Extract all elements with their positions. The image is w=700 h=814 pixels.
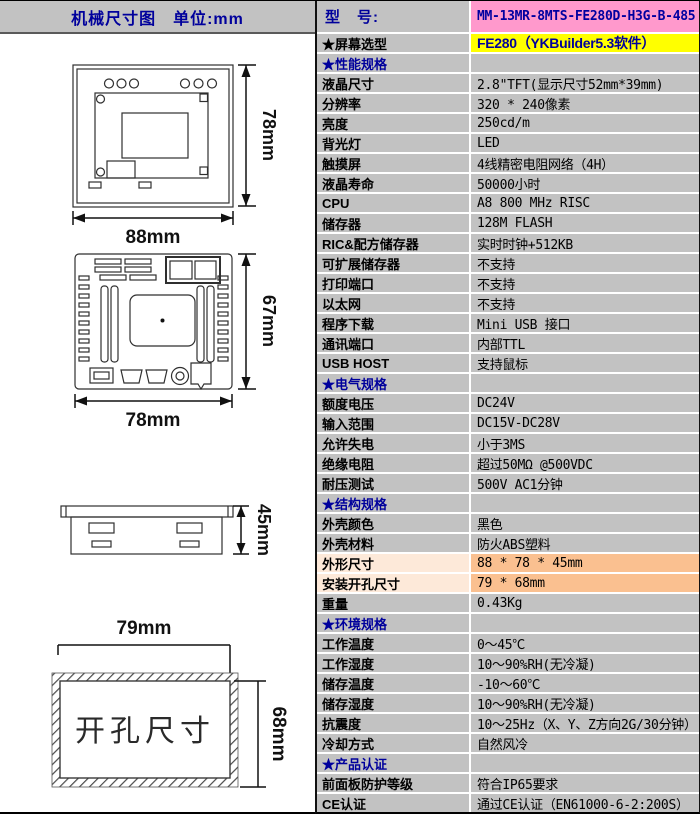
side-view-drawing: 45mm — [61, 504, 274, 556]
spec-row: 程序下载Mini USB 接口 — [317, 314, 699, 334]
spec-row-value: 10～25Hz（X、Y、Z方向2G/30分钟） — [471, 714, 699, 732]
spec-row-value: 500V AC1分钟 — [471, 474, 699, 492]
datasheet: 机械尺寸图 单位:mm — [0, 0, 700, 814]
spec-row: ★电气规格 — [317, 374, 699, 394]
spec-row-value: 128M FLASH — [471, 214, 699, 232]
spec-row-label: CPU — [317, 194, 469, 212]
spec-row-label: 背光灯 — [317, 134, 469, 152]
spec-row-value: MM-13MR-8MTS-FE280D-H3G-B-485 — [471, 1, 699, 32]
spec-row: 外壳颜色黑色 — [317, 514, 699, 534]
spec-row-label: 外壳材料 — [317, 534, 469, 552]
spec-row-label: 程序下载 — [317, 314, 469, 332]
spec-row: RIC&配方储存器实时时钟+512KB — [317, 234, 699, 254]
spec-row-value — [471, 614, 699, 632]
mechanical-panel-title: 机械尺寸图 单位:mm — [0, 1, 315, 34]
spec-row-label: 分辨率 — [317, 94, 469, 112]
spec-row-label: 工作温度 — [317, 634, 469, 652]
spec-row-label: 工作湿度 — [317, 654, 469, 672]
spec-row-label: CE认证 — [317, 794, 469, 812]
spec-row-value: 88 * 78 * 45mm — [471, 554, 699, 572]
spec-row-label: 以太网 — [317, 294, 469, 312]
spec-row-value: Mini USB 接口 — [471, 314, 699, 332]
spec-row: 可扩展储存器不支持 — [317, 254, 699, 274]
spec-row: 重量0.43Kg — [317, 594, 699, 614]
spec-row-value: A8 800 MHz RISC — [471, 194, 699, 212]
spec-row: ★环境规格 — [317, 614, 699, 634]
spec-row-label: 安装开孔尺寸 — [317, 574, 469, 592]
spec-row: 储存器128M FLASH — [317, 214, 699, 234]
spec-row-label: 绝缘电阻 — [317, 454, 469, 472]
cutout-height-label: 68mm — [268, 707, 289, 762]
spec-row-label: 触摸屏 — [317, 154, 469, 172]
spec-row: 绝缘电阻超过50MΩ @500VDC — [317, 454, 699, 474]
spec-row-value: LED — [471, 134, 699, 152]
spec-row-label: 可扩展储存器 — [317, 254, 469, 272]
spec-row-value: 超过50MΩ @500VDC — [471, 454, 699, 472]
spec-row: ★结构规格 — [317, 494, 699, 514]
spec-row: 外壳材料防火ABS塑料 — [317, 534, 699, 554]
spec-row-label: 抗震度 — [317, 714, 469, 732]
spec-row-label: ★电气规格 — [317, 374, 469, 392]
spec-row-value: 2.8"TFT(显示尺寸52mm*39mm) — [471, 74, 699, 92]
spec-row-label: 额度电压 — [317, 394, 469, 412]
spec-row-value: 79 * 68mm — [471, 574, 699, 592]
spec-row-label: 外壳颜色 — [317, 514, 469, 532]
spec-row-label: 输入范围 — [317, 414, 469, 432]
spec-row-value: 内部TTL — [471, 334, 699, 352]
spec-row-label: RIC&配方储存器 — [317, 234, 469, 252]
spec-row-value: -10～60℃ — [471, 674, 699, 692]
side-height-label: 45mm — [254, 504, 274, 556]
spec-row: 工作湿度10～90%RH(无冷凝) — [317, 654, 699, 674]
spec-row-label: 液晶尺寸 — [317, 74, 469, 92]
spec-row: 通讯端口内部TTL — [317, 334, 699, 354]
cutout-caption: 开孔尺寸 — [75, 715, 215, 748]
spec-row: ★屏幕选型FE280（YKBuilder5.3软件） — [317, 34, 699, 54]
mechanical-drawings: 78mm 88mm — [0, 34, 315, 812]
spec-row: 抗震度10～25Hz（X、Y、Z方向2G/30分钟） — [317, 714, 699, 734]
spec-row: 以太网不支持 — [317, 294, 699, 314]
spec-row-value: 0.43Kg — [471, 594, 699, 612]
spec-row: 打印端口不支持 — [317, 274, 699, 294]
spec-row-value: 10～90%RH(无冷凝) — [471, 694, 699, 712]
spec-row: 允许失电小于3MS — [317, 434, 699, 454]
spec-row-value: 4线精密电阻网络（4H） — [471, 154, 699, 172]
spec-row-value: 防火ABS塑料 — [471, 534, 699, 552]
spec-row-label: 型 号: — [317, 1, 469, 32]
spec-row: 冷却方式自然风冷 — [317, 734, 699, 754]
spec-row-value: 支持鼠标 — [471, 354, 699, 372]
spec-row-label: ★结构规格 — [317, 494, 469, 512]
spec-row: USB HOST支持鼠标 — [317, 354, 699, 374]
spec-row: 型 号:MM-13MR-8MTS-FE280D-H3G-B-485 — [317, 1, 699, 34]
spec-row: 前面板防护等级符合IP65要求 — [317, 774, 699, 794]
spec-row-value: 小于3MS — [471, 434, 699, 452]
spec-row-label: ★环境规格 — [317, 614, 469, 632]
spec-row: ★性能规格 — [317, 54, 699, 74]
spec-row-value: 320 * 240像素 — [471, 94, 699, 112]
spec-row-value: 不支持 — [471, 254, 699, 272]
spec-row: 耐压测试500V AC1分钟 — [317, 474, 699, 494]
spec-row: ★产品认证 — [317, 754, 699, 774]
spec-row-label: 打印端口 — [317, 274, 469, 292]
spec-row-label: 液晶寿命 — [317, 174, 469, 192]
spec-row-label: 重量 — [317, 594, 469, 612]
spec-row: 工作温度0～45℃ — [317, 634, 699, 654]
spec-row-label: USB HOST — [317, 354, 469, 372]
spec-row: 储存湿度10～90%RH(无冷凝) — [317, 694, 699, 714]
spec-row: 背光灯LED — [317, 134, 699, 154]
spec-row: 触摸屏4线精密电阻网络（4H） — [317, 154, 699, 174]
spec-row: CE认证通过CE认证（EN61000-6-2:200S） — [317, 794, 699, 812]
spec-row-value — [471, 754, 699, 772]
spec-row-value: 通过CE认证（EN61000-6-2:200S） — [471, 794, 699, 812]
spec-row: 亮度250cd/m — [317, 114, 699, 134]
spec-row-value — [471, 54, 699, 72]
spec-row-label: 储存器 — [317, 214, 469, 232]
spec-row-label: ★产品认证 — [317, 754, 469, 772]
spec-row-value: 自然风冷 — [471, 734, 699, 752]
spec-row-label: 允许失电 — [317, 434, 469, 452]
spec-row-value: 黑色 — [471, 514, 699, 532]
spec-row-label: ★性能规格 — [317, 54, 469, 72]
spec-row-label: ★屏幕选型 — [317, 34, 469, 52]
spec-row-value: 不支持 — [471, 294, 699, 312]
spec-row: 外形尺寸88 * 78 * 45mm — [317, 554, 699, 574]
spec-row-label: 耐压测试 — [317, 474, 469, 492]
spec-row-label: 亮度 — [317, 114, 469, 132]
spec-row: 储存温度-10～60℃ — [317, 674, 699, 694]
spec-row: CPUA8 800 MHz RISC — [317, 194, 699, 214]
spec-row-value — [471, 374, 699, 392]
spec-row-value: 0～45℃ — [471, 634, 699, 652]
spec-row: 液晶寿命50000小时 — [317, 174, 699, 194]
spec-row-label: 储存温度 — [317, 674, 469, 692]
spec-row: 液晶尺寸2.8"TFT(显示尺寸52mm*39mm) — [317, 74, 699, 94]
spec-row-value: 10～90%RH(无冷凝) — [471, 654, 699, 672]
spec-row-label: 冷却方式 — [317, 734, 469, 752]
spec-row-value: 不支持 — [471, 274, 699, 292]
spec-row-label: 前面板防护等级 — [317, 774, 469, 792]
front-height-label: 78mm — [259, 109, 279, 161]
cutout-width-label: 79mm — [117, 618, 172, 639]
spec-row-value: DC24V — [471, 394, 699, 412]
spec-row-value: 50000小时 — [471, 174, 699, 192]
front-width-label: 88mm — [126, 227, 181, 248]
spec-row-value: 符合IP65要求 — [471, 774, 699, 792]
spec-row-value: DC15V-DC28V — [471, 414, 699, 432]
spec-row: 分辨率320 * 240像素 — [317, 94, 699, 114]
spec-table: 型 号:MM-13MR-8MTS-FE280D-H3G-B-485★屏幕选型FE… — [315, 1, 700, 814]
front-view-drawing: 78mm 88mm — [73, 65, 279, 248]
spec-row: 输入范围DC15V-DC28V — [317, 414, 699, 434]
spec-row-value: 250cd/m — [471, 114, 699, 132]
back-height-label: 67mm — [259, 295, 279, 347]
back-width-label: 78mm — [126, 410, 181, 431]
spec-row-value: 实时时钟+512KB — [471, 234, 699, 252]
spec-row-label: 外形尺寸 — [317, 554, 469, 572]
spec-row: 额度电压DC24V — [317, 394, 699, 414]
back-view-drawing: 67mm 78mm — [75, 254, 279, 431]
spec-row-value — [471, 494, 699, 512]
spec-row: 安装开孔尺寸79 * 68mm — [317, 574, 699, 594]
spec-row-label: 储存湿度 — [317, 694, 469, 712]
spec-row-label: 通讯端口 — [317, 334, 469, 352]
mechanical-panel: 机械尺寸图 单位:mm — [0, 1, 315, 814]
cutout-drawing: 79mm 开孔尺寸 68mm — [52, 618, 289, 787]
spec-row-value: FE280（YKBuilder5.3软件） — [471, 34, 699, 52]
